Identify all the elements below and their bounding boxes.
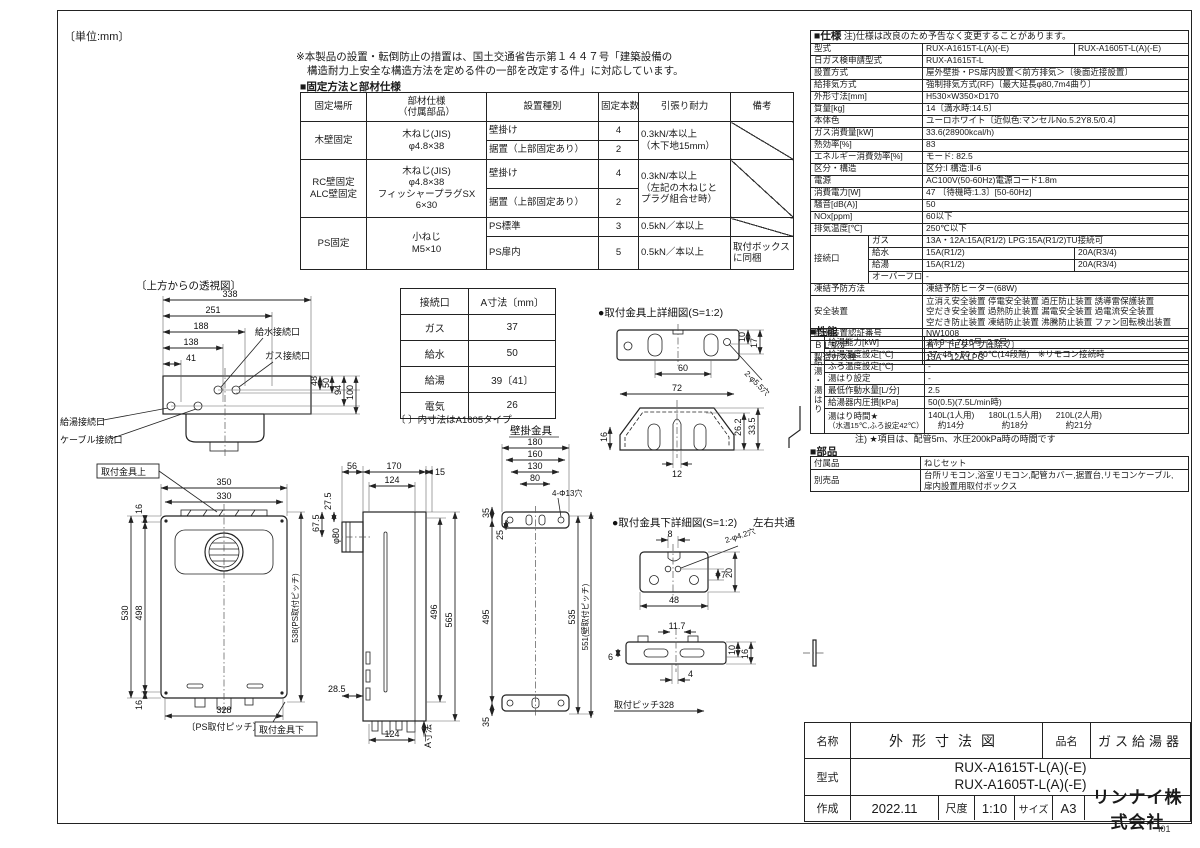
section-note: 注)仕様は改良のため予告なく変更することがあります。	[844, 31, 1071, 41]
cell: 据置（上部固定あり）	[487, 141, 599, 160]
cell: 4	[599, 122, 639, 141]
cell-line: 扉内設置用取付ボックス	[924, 481, 1185, 492]
cell: 壁掛け	[487, 160, 599, 189]
row-sublabel: オーバーフロー	[869, 271, 923, 283]
drawing-title: ●取付金具下詳細図(S=1:2)	[612, 516, 737, 529]
cell: 強制排気方式(RF)〔最大延長φ80,7m4曲り〕	[923, 79, 1189, 91]
dim-label: 16	[134, 700, 144, 710]
cell: 5	[599, 237, 639, 270]
dim-label: 251	[205, 305, 220, 315]
cell-line: 空だき安全装置 過熱防止装置 漏電安全装置 過電流安全装置	[926, 306, 1185, 317]
upper-detail-side-profile	[789, 406, 800, 448]
dim-label: 20	[724, 568, 734, 578]
dim-label: 495	[481, 609, 491, 624]
cell: RUX-A1615T-L(A)(-E)	[923, 43, 1075, 55]
hole-callout: 2-φ5.5穴	[743, 368, 772, 397]
table-row: 質量[kg]14〔満水時:14.5〕	[811, 103, 1189, 115]
table-row: 給湯器内圧損[kPa]50(0.5)(7.5L/min時)	[811, 397, 1189, 409]
table-row: PS固定 小ねじM5×10 PS標準 3 0.5kN／本以上	[301, 218, 794, 237]
cell-line: 立消え安全装置 停電安全装置 過圧防止装置 誘導雷保護装置	[926, 296, 1185, 307]
cell: 250℃以下	[923, 223, 1189, 235]
cell-line: 取付ボックス	[733, 242, 791, 253]
regulation-note-line2: 構造耐力上安全な構造方法を定める件の一部を改定する件」に対応しています。	[296, 64, 684, 78]
side-view-drawing: 56 170 15 124 27.5 φ80 67.5 496 565 28.5…	[312, 452, 492, 752]
cell-line: （水温15℃,ふろ設定42℃）	[828, 422, 921, 430]
front-view-bracket-labels: 取付金具上 取付金具下	[97, 464, 317, 736]
company-name: リンナイ株式会社	[1084, 796, 1190, 820]
cell-line: 0.3kN/本以上	[641, 171, 728, 182]
dim-label: 50	[321, 378, 331, 388]
table-row: エネルギー消費効率[%]モード: 82.5	[811, 151, 1189, 163]
cell: 壁掛け	[487, 122, 599, 141]
cell-line: φ4.8×38	[369, 177, 484, 188]
cell: 47 〔待機時:1.3〕[50-60Hz]	[923, 187, 1189, 199]
table-row: 電源AC100V(50-60Hz)電源コード1.8m	[811, 175, 1189, 187]
dim-label: 498	[134, 605, 144, 620]
port-label-hot: 給湯接続口	[60, 416, 105, 427]
cell-line: プラグ組合せ時）	[641, 194, 728, 205]
cell: 50	[469, 341, 556, 367]
table-row: 給湯温度設定[℃]37~48・50・60℃(14段階) ※リモコン接続時	[811, 349, 1189, 361]
table-row: 固定場所 部材仕様（付属部品） 設置種別 固定本数 引張り耐力 備考	[301, 93, 794, 122]
dim-label: 8	[667, 529, 672, 539]
cell-line: 木ねじ(JIS)	[369, 129, 484, 140]
table-row: 湯はり時間★（水温15℃,ふろ設定42℃） 140L(1人用)約14分 180L…	[811, 409, 1189, 434]
dim-label: 328	[216, 705, 231, 715]
col-header: 引張り耐力	[639, 93, 731, 122]
row-label: 型式	[811, 43, 923, 55]
table-row: 給湯39〔41〕	[401, 367, 556, 393]
row-label: 本体色	[811, 115, 923, 127]
section-title: ■仕様	[814, 31, 841, 43]
port-label-water: 給水接続口	[255, 326, 300, 337]
cell: 15A(R1/2)	[923, 247, 1075, 259]
lower-detail-plan	[640, 544, 708, 600]
table-row: 設置方式屋外壁掛・PS扉内設置＜前方排気＞〔後面近接設置〕	[811, 67, 1189, 79]
row-label: 凍結予防方法	[811, 283, 923, 295]
product-label: 品名	[1042, 723, 1090, 758]
lower-bracket-detail-drawing: ●取付金具下詳細図(S=1:2) 左右共通 8 2-φ4.2穴 7 20 48	[598, 512, 833, 717]
cell: 50(0.5)(7.5L/min時)	[925, 397, 1189, 409]
cell: RC壁固定ALC壁固定	[301, 160, 367, 218]
col-header: 部材仕様（付属部品）	[367, 93, 487, 122]
row-sublabel: 給湯	[869, 259, 923, 271]
row-sublabel: ガス	[869, 235, 923, 247]
row-label: 別売品	[811, 470, 921, 492]
lower-detail-front	[626, 628, 726, 672]
wall-bracket-dimensions: 180 160 130 80 4-Φ13穴 35 25 495 35 535 5…	[481, 437, 594, 727]
connection-size-table: 接続口A寸法〔mm〕 ガス37 給水50 給湯39〔41〕 電気26	[400, 288, 556, 419]
unit-note: 〔単位:mm〕	[64, 28, 129, 44]
cell: 屋外壁掛・PS扉内設置＜前方排気＞〔後面近接設置〕	[923, 67, 1189, 79]
side-view-outline	[332, 512, 426, 734]
dim-label: A寸法	[422, 724, 433, 748]
dim-label: 180	[527, 437, 542, 447]
table-row: 給湯・湯はり給湯能力[kW]27.9~4.7(16号~2.7号)	[811, 337, 1189, 349]
cell: H530×W350×D170	[923, 91, 1189, 103]
row-label: 質量[kg]	[811, 103, 923, 115]
row-label: 設置方式	[811, 67, 923, 79]
cell-line: 台所リモコン,浴室リモコン,配管カバー,据置台,リモコンケーブル,	[924, 470, 1185, 481]
table-row: 消費電力[W]47 〔待機時:1.3〕[50-60Hz]	[811, 187, 1189, 199]
dim-label: 124	[384, 475, 399, 485]
table-row: ガス37	[401, 315, 556, 341]
cell-line: 約18分	[988, 421, 1041, 431]
cell-line: （左記の木ねじと	[641, 183, 728, 194]
cell-line: RC壁固定	[303, 177, 364, 188]
spec-section-title: ■仕様 注)仕様は改良のため予告なく変更することがあります。	[811, 31, 1189, 44]
row-label: 騒音[dB(A)]	[811, 199, 923, 211]
cell: 4	[599, 160, 639, 189]
blank-cell	[731, 218, 794, 237]
cell: -	[925, 373, 1189, 385]
blank-cell	[731, 160, 794, 218]
dim-label: 72	[672, 383, 682, 393]
table-row: 付属品ねじセット	[811, 457, 1189, 470]
header-line: （付属部品）	[369, 107, 484, 118]
row-label: 区分・構造	[811, 163, 923, 175]
dim-label: 27.5	[323, 492, 333, 510]
front-view-outline	[161, 504, 287, 716]
col-header: 接続口	[401, 289, 469, 315]
size-value: A3	[1052, 796, 1084, 820]
blank-cell	[731, 122, 794, 160]
cell: PS扉内	[487, 237, 599, 270]
created-label: 作成	[805, 796, 850, 820]
dim-label: 330	[216, 491, 231, 501]
name-label: 名称	[805, 723, 850, 758]
dim-label: 48	[309, 376, 319, 386]
cell: -	[923, 271, 1189, 283]
dim-label: 538(PS取付ピッチ)	[290, 573, 300, 643]
model-label: 型式	[805, 759, 850, 795]
dim-label: 80	[530, 473, 540, 483]
cell: ガス	[401, 315, 469, 341]
col-header: 設置種別	[487, 93, 599, 122]
col-header: 固定場所	[301, 93, 367, 122]
dim-label: φ80	[331, 528, 341, 544]
dim-label: 100	[345, 385, 355, 400]
top-view-dimensions: 338 251 188 138 41 48 50 94 100	[163, 289, 360, 414]
drawing-title: ●取付金具上詳細図(S=1:2)	[598, 306, 723, 319]
cell-line: フィッシャープラグSX	[369, 189, 484, 200]
cell: 凍結予防ヒーター(68W)	[923, 283, 1189, 295]
row-label: 消費電力[W]	[811, 187, 923, 199]
cell: 小ねじM5×10	[367, 218, 487, 270]
table-row: 接続口ガス13A・12A:15A(R1/2) LPG:15A(R1/2)TU接続…	[811, 235, 1189, 247]
upper-detail-front	[620, 400, 734, 458]
row-label: ガス消費量[kW]	[811, 127, 923, 139]
cell: 15A(R1/2)	[923, 259, 1075, 271]
dim-label: 188	[193, 321, 208, 331]
cell: 木壁固定	[301, 122, 367, 160]
cell-line: 空だき防止装置 凍結防止装置 沸騰防止装置 ファン回転検出装置	[926, 317, 1185, 328]
dim-label: 530	[120, 605, 130, 620]
cell-line: 木ねじ(JIS)	[369, 166, 484, 177]
table-row: 最低作動水量[L/分]2.5	[811, 385, 1189, 397]
cell: 14〔満水時:14.5〕	[923, 103, 1189, 115]
title-block: 名称 外形寸法図 品名 ガス給湯器 型式 RUX-A1615T-L(A)(-E)…	[804, 722, 1191, 822]
upper-detail-plan	[617, 324, 739, 366]
wall-bracket-drawing: 壁掛金具 180 160 130 80 4-Φ13穴 35 25	[482, 422, 602, 732]
cell: 給水	[401, 341, 469, 367]
cell: 給湯	[401, 367, 469, 393]
table-row: 型式RUX-A1615T-L(A)(-E)RUX-A1605T-L(A)(-E)	[811, 43, 1189, 55]
row-label: 接続口	[811, 235, 869, 283]
row-label: 給湯器内圧損[kPa]	[825, 397, 925, 409]
table-row: ガス消費量[kW]33.6(28900kcal/h)	[811, 127, 1189, 139]
table-row: 外形寸法[mm]H530×W350×D170	[811, 91, 1189, 103]
table-row: 騒音[dB(A)]50	[811, 199, 1189, 211]
cell: PS標準	[487, 218, 599, 237]
dim-label: 124	[384, 729, 399, 739]
row-label: 日ガス検申請型式	[811, 55, 923, 67]
front-view-drawing: 350 330 530 498 16 16 328 〔PS取付ピッチ〕 538(…	[95, 458, 340, 753]
row-label: 熱効率[%]	[811, 139, 923, 151]
cell: 木ねじ(JIS)φ4.8×38	[367, 122, 487, 160]
dim-label: 16	[740, 649, 750, 659]
header-line: 部材仕様	[369, 96, 484, 107]
scale-value: 1:10	[974, 796, 1014, 820]
cell-line: （木下地15mm）	[641, 141, 728, 152]
cell: 区分:Ⅰ 構造:Ⅱ-6	[923, 163, 1189, 175]
dim-label: 496	[429, 604, 439, 619]
spec-table: ■仕様 注)仕様は改良のため予告なく変更することがあります。 型式RUX-A16…	[810, 30, 1189, 365]
cell: ねじセット	[921, 457, 1189, 470]
cell: 取付ボックスに同梱	[731, 237, 794, 270]
fixing-table: 固定場所 部材仕様（付属部品） 設置種別 固定本数 引張り耐力 備考 木壁固定 …	[300, 92, 794, 270]
row-label: エネルギー消費効率[%]	[811, 151, 923, 163]
table-row: 給水50	[401, 341, 556, 367]
cell: 3	[599, 218, 639, 237]
table-row: 凍結予防方法凍結予防ヒーター(68W)	[811, 283, 1189, 295]
cell: 立消え安全装置 停電安全装置 過圧防止装置 誘導雷保護装置空だき安全装置 過熱防…	[923, 295, 1189, 328]
title-block-row: 作成 2022.11 尺度 1:10 サイズ A3 リンナイ株式会社	[805, 795, 1190, 820]
dim-label: 338	[222, 289, 237, 299]
dim-label: 28.5	[328, 684, 346, 694]
table-row: 排気温度[℃]250℃以下	[811, 223, 1189, 235]
hole-callout: 4-Φ13穴	[552, 488, 582, 498]
dim-label: 67.5	[311, 514, 321, 532]
title-block-row: 名称 外形寸法図 品名 ガス給湯器	[805, 723, 1190, 758]
cell: 0.3kN/本以上（左記の木ねじとプラグ組合せ時）	[639, 160, 731, 218]
row-label: 付属品	[811, 457, 921, 470]
dim-label: 60	[678, 363, 688, 373]
dim-label: 565	[444, 612, 454, 627]
cell-line: 小ねじ	[369, 232, 484, 243]
row-sublabel: 給水	[869, 247, 923, 259]
model-line: RUX-A1615T-L(A)(-E)	[954, 760, 1086, 777]
cell: AC100V(50-60Hz)電源コード1.8m	[923, 175, 1189, 187]
dim-label: 170	[386, 461, 401, 471]
table-row: 熱効率[%]83	[811, 139, 1189, 151]
dim-label: 12	[672, 469, 682, 479]
cell: 140L(1人用)約14分 180L(1.5人用)約18分 210L(2人用)約…	[925, 409, 1189, 434]
dim-label: 26.2	[733, 418, 743, 436]
row-label: NOx[ppm]	[811, 211, 923, 223]
col-header: 備考	[731, 93, 794, 122]
cell: ユーロホワイト〔近似色:マンセルNo.5.2Y8.5/0.4〕	[923, 115, 1189, 127]
table-row: 安全装置立消え安全装置 停電安全装置 過圧防止装置 誘導雷保護装置空だき安全装置…	[811, 295, 1189, 328]
cell: 20A(R3/4)	[1075, 247, 1189, 259]
row-label: 外形寸法[mm]	[811, 91, 923, 103]
cell: 0.3kN/本以上（木下地15mm）	[639, 122, 731, 160]
cell-line: 約14分	[928, 421, 974, 431]
row-label: 給湯能力[kW]	[825, 337, 925, 349]
dim-label: 10	[737, 332, 747, 342]
created-date: 2022.11	[850, 796, 938, 820]
dim-label: 16	[134, 504, 144, 514]
table-row: ■仕様 注)仕様は改良のため予告なく変更することがあります。	[811, 31, 1189, 44]
lower-detail-plan-dims: 8 2-φ4.2穴 7 20 48	[640, 526, 757, 610]
row-label: 最低作動水量[L/分]	[825, 385, 925, 397]
dim-label: 11.7	[669, 621, 686, 631]
front-view-dimensions: 350 330 530 498 16 16 328 〔PS取付ピッチ〕 538(…	[120, 477, 305, 732]
fill-time-col: 180L(1.5人用)約18分	[988, 411, 1041, 430]
cell: 37~48・50・60℃(14段階) ※リモコン接続時	[925, 349, 1189, 361]
table-row: 本体色ユーロホワイト〔近似色:マンセルNo.5.2Y8.5/0.4〕	[811, 115, 1189, 127]
drawing-sheet: 〔単位:mm〕 ※本製品の設置・転倒防止の措置は、国土交通省告示第１４４７号「建…	[0, 0, 1200, 848]
row-label: 電源	[811, 175, 923, 187]
dim-label: 551(壁取付ピッチ)	[580, 583, 590, 650]
cell: 39〔41〕	[469, 367, 556, 393]
cell: 0.5kN／本以上	[639, 237, 731, 270]
dim-label: 10	[727, 645, 737, 655]
cell: RUX-A1615T-L	[923, 55, 1189, 67]
dim-label: 41	[186, 353, 196, 363]
lower-detail-side-profile	[803, 640, 826, 666]
cell: 台所リモコン,浴室リモコン,配管カバー,据置台,リモコンケーブル,扉内設置用取付…	[921, 470, 1189, 492]
dim-label: 48	[669, 595, 679, 605]
upper-bracket-detail-drawing: ●取付金具上詳細図(S=1:2) 60 10 17 2-φ5.5穴	[592, 302, 812, 502]
dim-label: 56	[347, 461, 357, 471]
cell: 27.9~4.7(16号~2.7号)	[925, 337, 1189, 349]
dim-label: 35	[481, 717, 491, 727]
dim-label: 〔PS取付ピッチ〕	[186, 722, 261, 732]
cell: 2	[599, 189, 639, 218]
cell-line: M5×10	[369, 244, 484, 255]
wall-bracket-outline	[502, 506, 569, 718]
dim-label: 25	[495, 530, 505, 540]
col-header: A寸法〔mm〕	[469, 289, 556, 315]
dim-label: 35	[481, 508, 491, 518]
cell-line: φ4.8×38	[369, 141, 484, 152]
cell-line: に同梱	[733, 253, 791, 264]
cell: PS固定	[301, 218, 367, 270]
cell-line: 0.3kN/本以上	[641, 129, 728, 140]
row-label: 湯はり設定	[825, 373, 925, 385]
dim-label: 130	[527, 461, 542, 471]
dim-label: 535	[567, 609, 577, 624]
cell: 83	[923, 139, 1189, 151]
group-label: 給湯・湯はり	[811, 337, 825, 434]
side-view-dimensions: 56 170 15 124 27.5 φ80 67.5 496 565 28.5…	[311, 461, 460, 748]
cell: -	[925, 361, 1189, 373]
table-row: 湯はり設定-	[811, 373, 1189, 385]
col-header: 固定本数	[599, 93, 639, 122]
row-label: 給排気方式	[811, 79, 923, 91]
table-row: ふろ温度設定[℃]-	[811, 361, 1189, 373]
pitch-label: 取付ピッチ328	[614, 700, 674, 710]
drawing-name: 外形寸法図	[850, 723, 1042, 758]
dim-label: 17	[749, 338, 759, 348]
cell: 0.5kN／本以上	[639, 218, 731, 237]
cell-line: ALC壁固定	[303, 189, 364, 200]
upper-detail-front-dims: 72 16 26.2 33.5 12	[599, 383, 764, 479]
fill-time-col: 210L(2人用)約21分	[1056, 411, 1102, 430]
lower-detail-front-dims: 11.7 10 16 6 4 取付ピッチ328	[608, 621, 756, 711]
regulation-note: ※本製品の設置・転倒防止の措置は、国土交通省告示第１４４７号「建築設備の 構造耐…	[296, 50, 684, 78]
port-label-gas: ガス接続口	[265, 350, 310, 361]
cell: 37	[469, 315, 556, 341]
dim-label: 16	[599, 432, 609, 442]
table-row: 日ガス検申請型式RUX-A1615T-L	[811, 55, 1189, 67]
scale-label: 尺度	[938, 796, 974, 820]
cell: 50	[923, 199, 1189, 211]
dim-label: 160	[527, 449, 542, 459]
dim-label: 33.5	[747, 417, 757, 435]
fill-time-col: 140L(1人用)約14分	[928, 411, 974, 430]
row-label: ふろ温度設定[℃]	[825, 361, 925, 373]
table-row: 接続口A寸法〔mm〕	[401, 289, 556, 315]
parts-table: 付属品ねじセット 別売品台所リモコン,浴室リモコン,配管カバー,据置台,リモコン…	[810, 456, 1189, 492]
cell-line: 6×30	[369, 200, 484, 211]
drawing-subtitle: 左右共通	[753, 516, 795, 529]
cell: 据置（上部固定あり）	[487, 189, 599, 218]
regulation-note-line1: ※本製品の設置・転倒防止の措置は、国土交通省告示第１４４７号「建築設備の	[296, 50, 684, 64]
table-row: 区分・構造区分:Ⅰ 構造:Ⅱ-6	[811, 163, 1189, 175]
cell: 13A・12A:15A(R1/2) LPG:15A(R1/2)TU接続可	[923, 235, 1189, 247]
dim-label: 350	[216, 477, 231, 487]
table-row: 木壁固定 木ねじ(JIS)φ4.8×38 壁掛け 4 0.3kN/本以上（木下地…	[301, 122, 794, 141]
performance-table: 給湯・湯はり給湯能力[kW]27.9~4.7(16号~2.7号) 給湯温度設定[…	[810, 336, 1189, 434]
row-label: 給湯温度設定[℃]	[825, 349, 925, 361]
product-name: ガス給湯器	[1090, 723, 1190, 758]
row-label: 排気温度[℃]	[811, 223, 923, 235]
top-view-drawing: 〔上方からの透視図〕 338 251 188 138 41	[58, 278, 363, 463]
dim-label: 6	[608, 652, 613, 662]
performance-note: 注) ★項目は、配管5m、水圧200kPa時の時間です	[855, 432, 1056, 445]
dim-label: 15	[435, 467, 445, 477]
table-row: 給排気方式強制排気方式(RF)〔最大延長φ80,7m4曲り〕	[811, 79, 1189, 91]
cell: 60以下	[923, 211, 1189, 223]
cell: 33.6(28900kcal/h)	[923, 127, 1189, 139]
cell-line: 約21分	[1056, 421, 1102, 431]
upper-bracket-label: 取付金具上	[101, 466, 146, 477]
cell: 2.5	[925, 385, 1189, 397]
dim-label: 94	[333, 385, 343, 395]
cell: 木ねじ(JIS)φ4.8×38フィッシャープラグSX6×30	[367, 160, 487, 218]
table-row: 別売品台所リモコン,浴室リモコン,配管カバー,据置台,リモコンケーブル,扉内設置…	[811, 470, 1189, 492]
lower-bracket-label: 取付金具下	[259, 724, 304, 735]
cell: RUX-A1605T-L(A)(-E)	[1075, 43, 1189, 55]
cell: モード: 82.5	[923, 151, 1189, 163]
cell: 20A(R3/4)	[1075, 259, 1189, 271]
sheet-corner-mark: I01	[1158, 824, 1171, 834]
table-row: RC壁固定ALC壁固定 木ねじ(JIS)φ4.8×38フィッシャープラグSX6×…	[301, 160, 794, 189]
dim-label: 138	[183, 337, 198, 347]
cell: 2	[599, 141, 639, 160]
size-label: サイズ	[1014, 796, 1052, 820]
row-label: 湯はり時間★（水温15℃,ふろ設定42℃）	[825, 409, 925, 434]
model-line: RUX-A1605T-L(A)(-E)	[954, 777, 1086, 794]
table-row: NOx[ppm]60以下	[811, 211, 1189, 223]
drawing-title: 壁掛金具	[510, 424, 552, 437]
dim-label: 4	[688, 669, 693, 679]
port-label-cable: ケーブル接続口	[60, 434, 122, 445]
